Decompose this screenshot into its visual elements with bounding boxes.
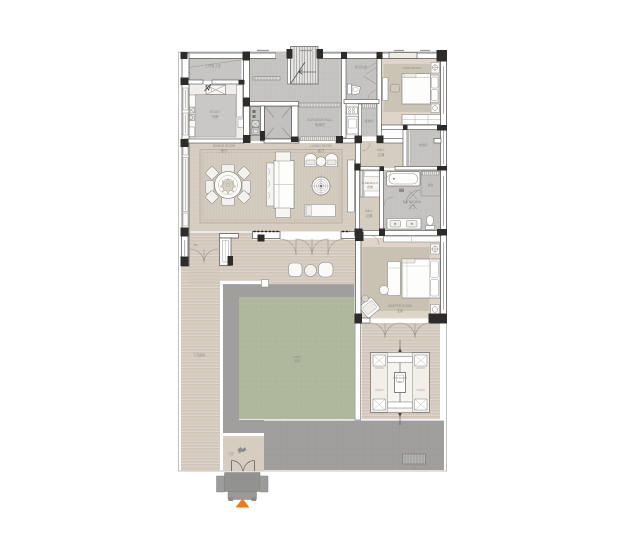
svg-text:ELEVATOR HALL: ELEVATOR HALL xyxy=(307,118,333,122)
svg-text:MASTER ROOM: MASTER ROOM xyxy=(388,304,412,308)
svg-text:衣帽间: 衣帽间 xyxy=(418,142,427,147)
svg-text:客厅: 客厅 xyxy=(318,148,325,153)
svg-text:HALL: HALL xyxy=(365,209,373,213)
svg-text:主卧: 主卧 xyxy=(397,308,404,313)
svg-text:淋浴: 淋浴 xyxy=(428,183,434,187)
svg-text:B1: B1 xyxy=(398,380,402,384)
svg-text:DINING ROOM: DINING ROOM xyxy=(213,144,235,148)
svg-text:工作台上空: 工作台上空 xyxy=(205,63,221,68)
svg-text:LIVING ROOM: LIVING ROOM xyxy=(310,144,332,148)
svg-text:餐厅: 餐厅 xyxy=(221,148,228,153)
svg-text:HALL: HALL xyxy=(377,148,385,152)
svg-text:B1: B1 xyxy=(194,243,198,247)
svg-text:过道: 过道 xyxy=(366,213,373,218)
svg-text:衣帽: 衣帽 xyxy=(367,184,373,189)
svg-text:BATHROOM: BATHROOM xyxy=(403,200,422,204)
svg-text:STUDY: STUDY xyxy=(210,110,222,114)
svg-text:主卫: 主卫 xyxy=(409,204,416,209)
svg-text:书房: 书房 xyxy=(211,114,219,119)
svg-text:电梯厅: 电梯厅 xyxy=(315,122,326,127)
svg-text:KIDS ROOM: KIDS ROOM xyxy=(403,66,421,70)
svg-text:门厅: 门厅 xyxy=(228,451,234,456)
svg-text:下沉庭院: 下沉庭院 xyxy=(193,352,205,357)
svg-text:家政间: 家政间 xyxy=(364,118,373,123)
svg-text:入口: 入口 xyxy=(411,466,417,470)
svg-text:客卫生间: 客卫生间 xyxy=(355,64,367,69)
svg-text:过道: 过道 xyxy=(378,152,385,157)
svg-text:草坪: 草坪 xyxy=(294,358,300,363)
